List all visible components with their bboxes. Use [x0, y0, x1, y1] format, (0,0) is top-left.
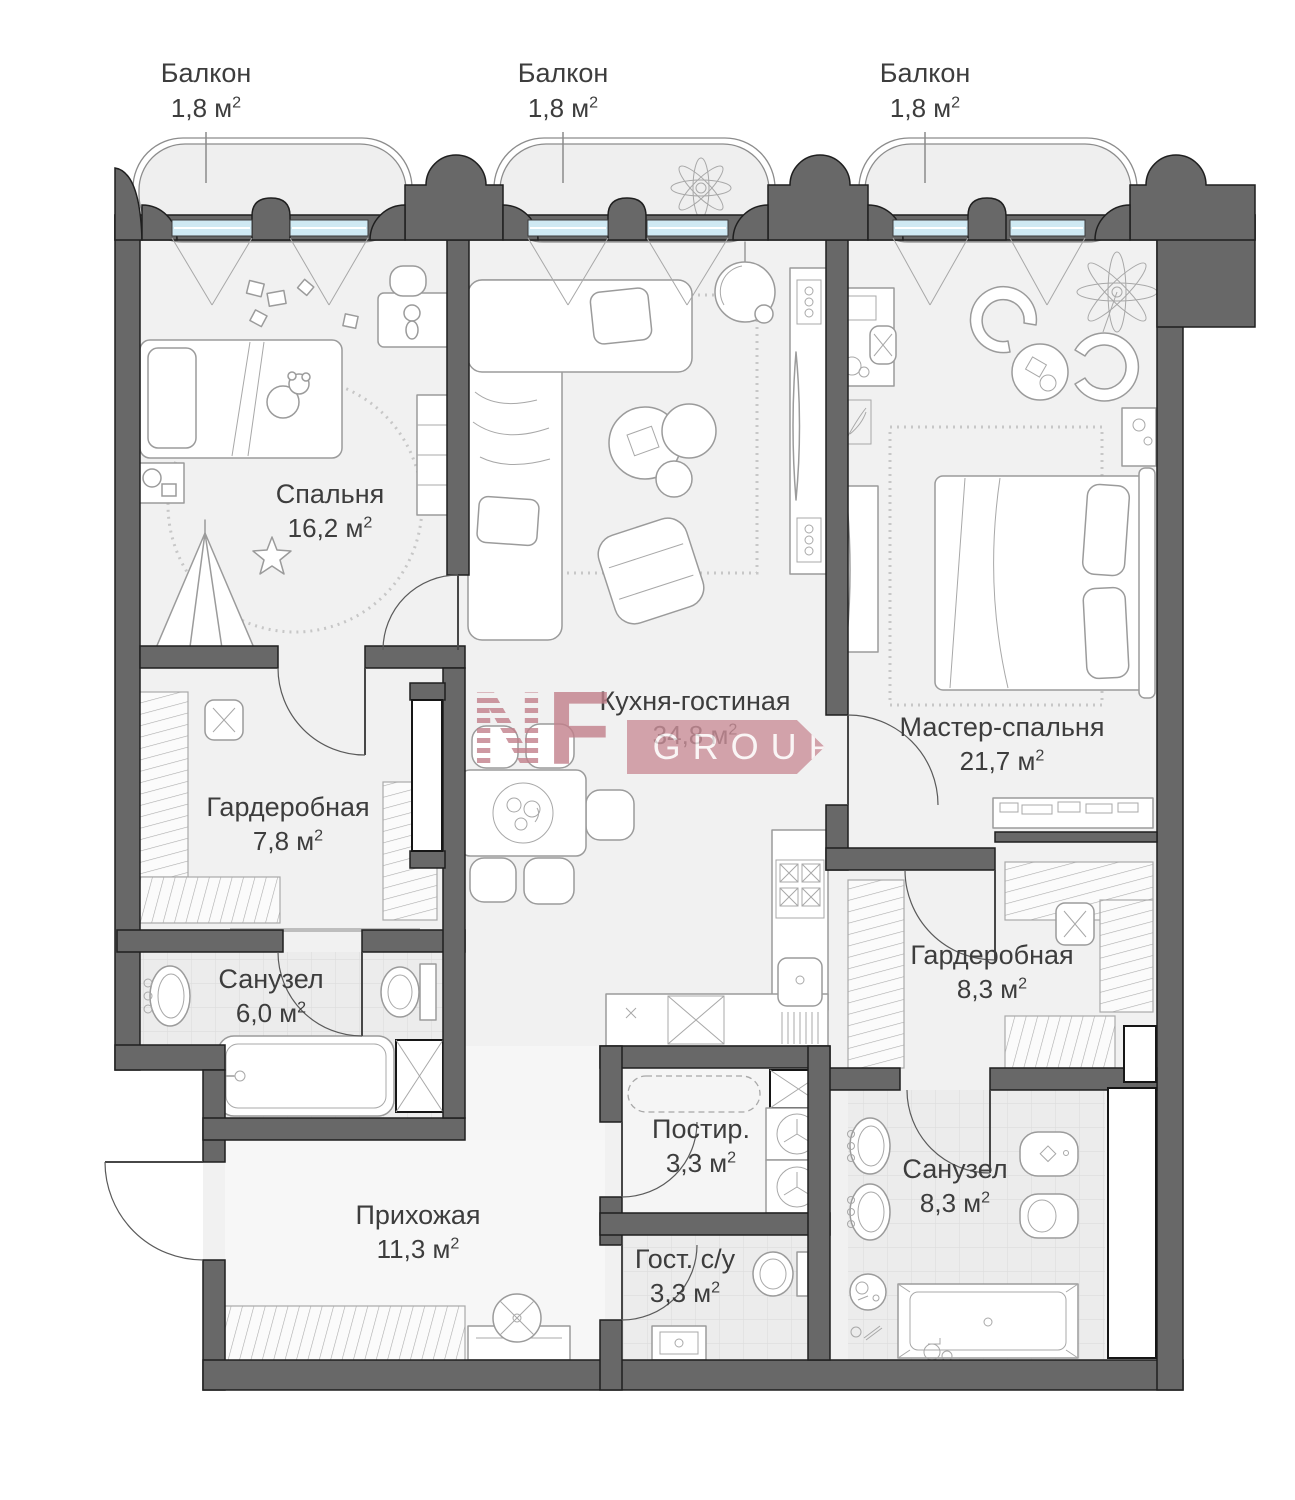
watermark-logo: N F GROUP: [470, 688, 825, 774]
balcony-label-1: Балкон 1,8 м2: [161, 55, 252, 127]
balcony-area: 1,8 м2: [161, 91, 252, 126]
tv-unit-living: [790, 268, 828, 574]
room-label-bathroom-1: Санузел 6,0 м2: [218, 962, 323, 1031]
balcony-name: Балкон: [518, 55, 609, 91]
balcony-name: Балкон: [880, 55, 971, 91]
balcony-name: Балкон: [161, 55, 252, 91]
balcony-label-3: Балкон 1,8 м2: [880, 55, 971, 127]
watermark-arrow: GROUP: [627, 720, 825, 774]
room-label-bathroom-2: Санузел 8,3 м2: [902, 1152, 1007, 1221]
floor-plan: Балкон 1,8 м2 Балкон 1,8 м2 Балкон 1,8 м…: [0, 0, 1295, 1500]
room-label-master-bedroom: Мастер-спальня 21,7 м2: [900, 710, 1105, 779]
balcony-label-2: Балкон 1,8 м2: [518, 55, 609, 127]
watermark-letter-n: N: [470, 688, 545, 771]
room-label-wardrobe-1: Гардеробная 7,8 м2: [206, 790, 369, 859]
room-label-hallway: Прихожая 11,3 м2: [355, 1198, 480, 1267]
room-label-wardrobe-2: Гардеробная 8,3 м2: [910, 938, 1073, 1007]
watermark-letter-f: F: [547, 688, 611, 771]
room-label-bedroom: Спальня 16,2 м2: [276, 477, 385, 546]
balcony-area: 1,8 м2: [880, 91, 971, 126]
room-label-guest-wc: Гост. с/у 3,3 м2: [635, 1242, 735, 1311]
room-label-laundry: Постир. 3,3 м2: [652, 1112, 750, 1181]
balcony-area: 1,8 м2: [518, 91, 609, 126]
watermark-group-text: GROUP: [653, 726, 845, 768]
